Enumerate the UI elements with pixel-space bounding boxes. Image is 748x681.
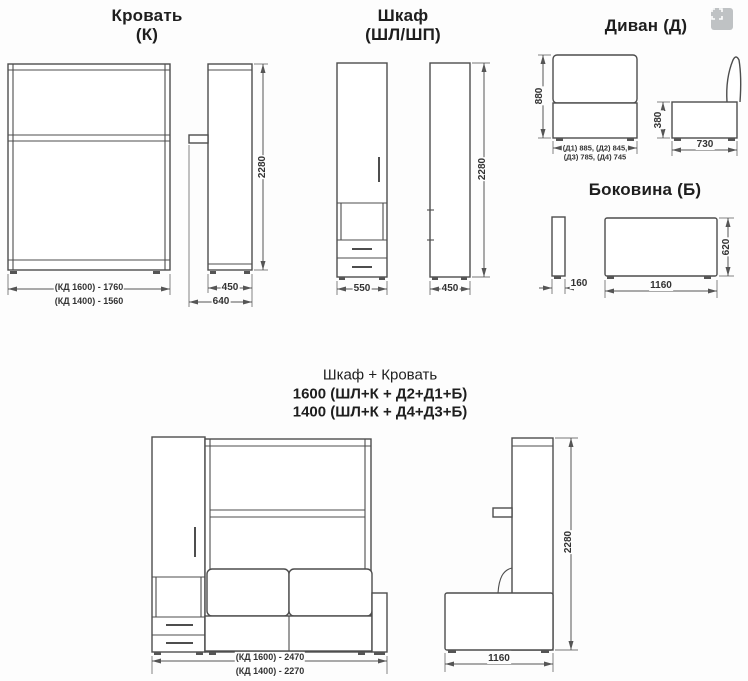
bed-subtitle: (К) [136, 25, 158, 45]
bed-side-handle [189, 135, 208, 143]
combo-width-1600-label: (КД 1600) - 2470 [235, 652, 305, 662]
combo-drawer-handle [166, 624, 193, 626]
bed-front-outer-rect [8, 64, 170, 270]
sofa-widths-line1-label: (Д1) 885, (Д2) 845, [562, 144, 628, 152]
sofa-front-view [553, 55, 637, 141]
sofa-side-view [672, 57, 741, 141]
combo-wardrobe [152, 437, 205, 652]
side-panel-title: Боковина (Б) [589, 180, 702, 200]
wardrobe-drawer-handle [352, 248, 372, 250]
bed-side-view [189, 64, 252, 274]
bed-title: Кровать [111, 6, 182, 26]
bed-width-1600-label: (КД 1600) - 1760 [54, 282, 124, 292]
sofa-depth-label: 730 [696, 140, 715, 150]
combo-drawer-handle [166, 642, 193, 644]
wardrobe-drawer-handle [352, 266, 372, 268]
sofa-height-label: 880 [535, 87, 545, 106]
side-panel-thickness-label: 160 [570, 279, 589, 289]
wardrobe-door-handle [378, 157, 380, 182]
bed-width-1400-label: (КД 1400) - 1560 [54, 296, 124, 306]
combo-side-seat [445, 593, 553, 650]
drawing-layer [0, 0, 748, 681]
bed-front-view [8, 64, 170, 274]
bed-side-outer-rect [208, 64, 252, 270]
wardrobe-title: Шкаф [378, 6, 429, 26]
combo-side-armrest-curve [498, 568, 512, 593]
sofa-side-backrest [727, 57, 741, 102]
sofa-seat-height-label: 380 [654, 111, 664, 130]
combo-side-view [445, 438, 553, 653]
wardrobe-depth-label: 450 [441, 284, 460, 294]
expand-icon-glyph [711, 8, 723, 20]
combo-side-panel [372, 593, 387, 652]
wardrobe-side-outer-rect [430, 63, 470, 277]
wardrobe-side-view [427, 63, 470, 280]
side-panel-edge-view [552, 217, 565, 279]
wardrobe-subtitle: (ШЛ/ШП) [365, 25, 441, 45]
bed-depth-outer-label: 640 [212, 297, 231, 307]
side-panel-edge-rect [552, 217, 565, 276]
sofa-title: Диван (Д) [605, 16, 687, 36]
side-panel-face-rect [605, 218, 717, 276]
bed-depth-inner-label: 450 [221, 283, 240, 293]
sofa-side-seat [672, 102, 737, 138]
wardrobe-width-label: 550 [353, 284, 372, 294]
side-panel-height-label: 620 [722, 238, 732, 257]
sofa-backrest [553, 55, 637, 103]
sofa-widths-line2-label: (Д3) 785, (Д4) 745 [563, 153, 627, 161]
bed-height-label: 2280 [258, 155, 268, 179]
combo-front-view [152, 437, 387, 655]
combo-sofa-cushion-left [207, 569, 289, 616]
side-panel-width-label: 1160 [649, 281, 673, 291]
combo-width-1400-label: (КД 1400) - 2270 [235, 666, 305, 676]
combo-variant-1400: 1400 (ШЛ+К + Д4+Д3+Б) [293, 404, 468, 421]
sofa-seat [553, 103, 637, 138]
combo-side-bracket [493, 508, 512, 517]
diagram-canvas: Кровать (К) Шкаф (ШЛ/ШП) Диван (Д) Боков… [0, 0, 748, 681]
combo-title: Шкаф + Кровать [323, 367, 437, 384]
combo-wardrobe-door-handle [194, 527, 196, 557]
wardrobe-height-label: 2280 [478, 157, 488, 181]
combo-sofa-cushion-right [289, 569, 372, 616]
combo-variant-1600: 1600 (ШЛ+К + Д2+Д1+Б) [293, 386, 468, 403]
wardrobe-front-view [337, 63, 387, 280]
side-panel-face-view [605, 218, 717, 279]
combo-depth-label: 1160 [487, 654, 511, 664]
fullscreen-icon[interactable] [711, 8, 733, 30]
combo-height-label: 2280 [564, 530, 574, 554]
